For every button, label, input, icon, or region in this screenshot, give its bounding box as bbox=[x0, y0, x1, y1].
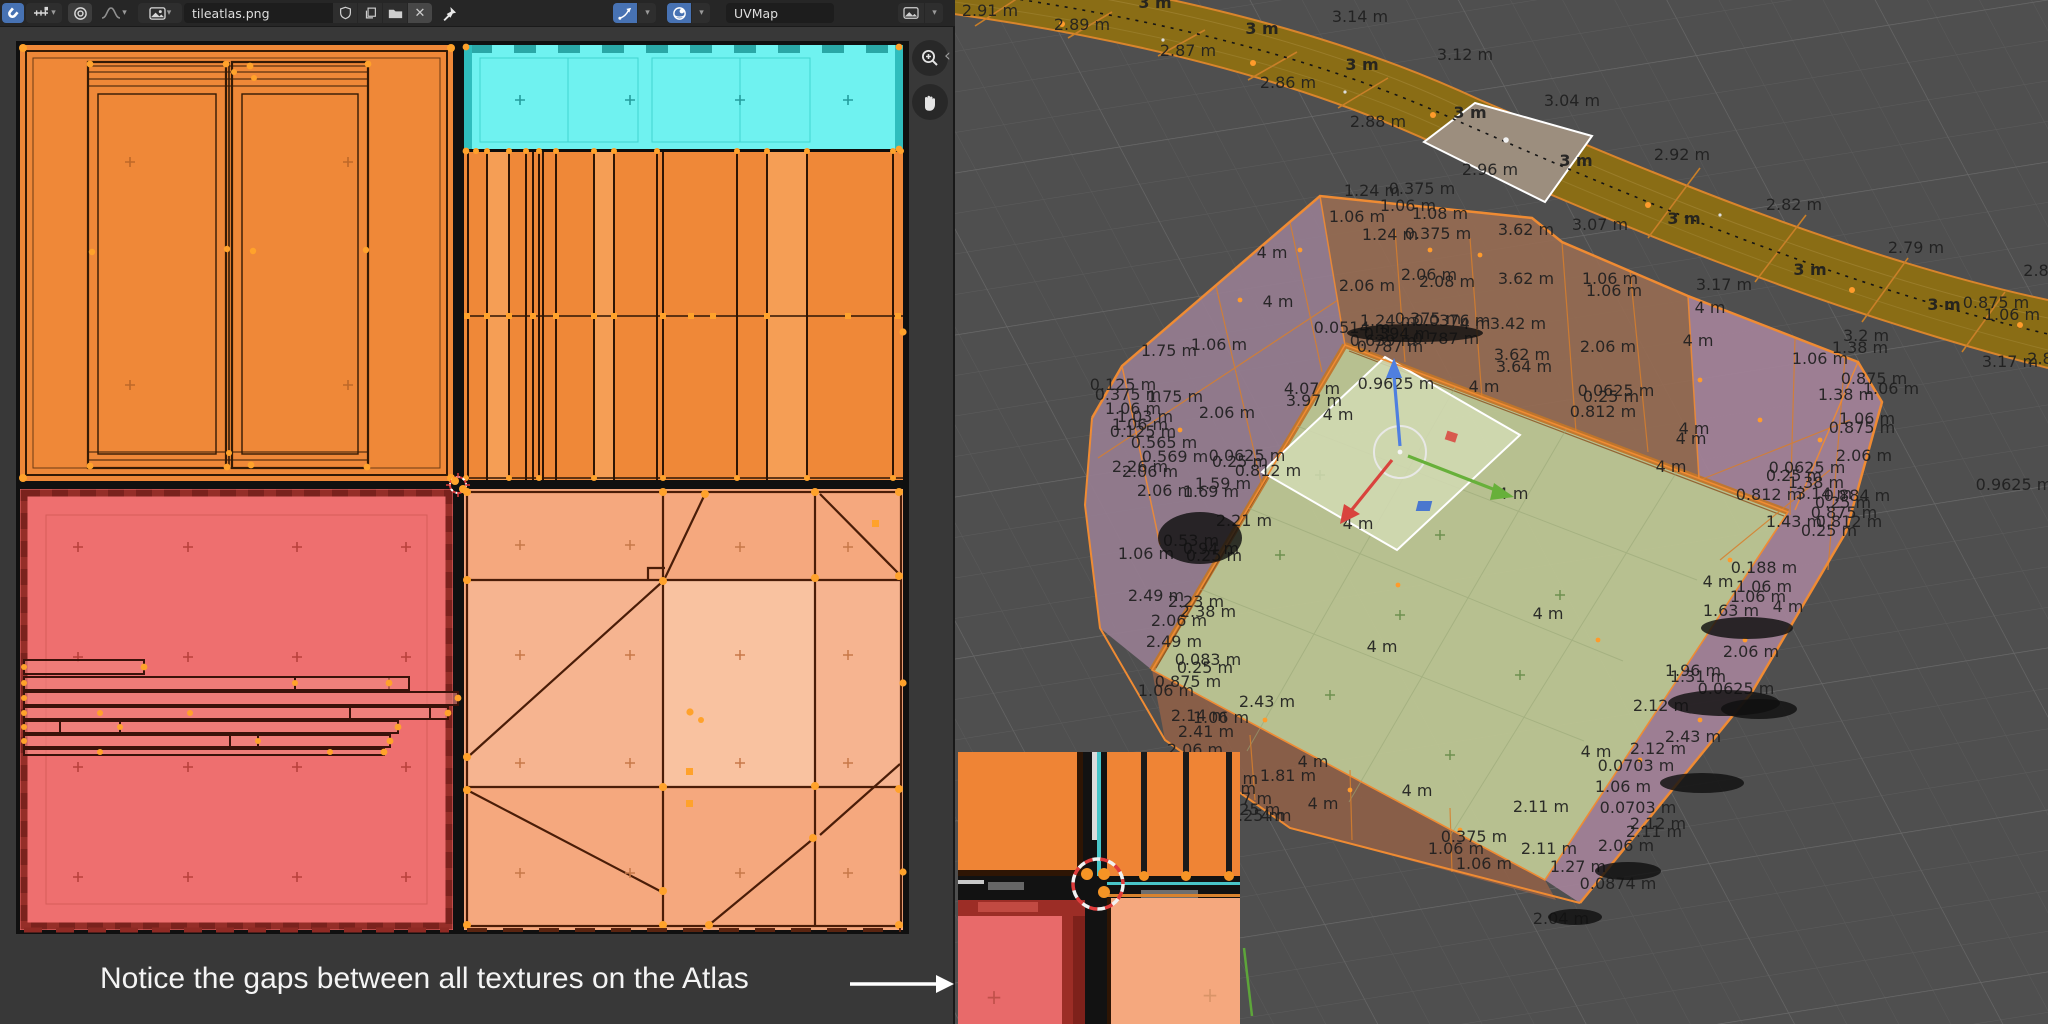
svg-text:2.08 m: 2.08 m bbox=[1419, 272, 1475, 291]
snap-toggle-button[interactable] bbox=[2, 3, 24, 23]
svg-text:3.42 m: 3.42 m bbox=[1490, 314, 1546, 333]
proportional-editing-button[interactable] bbox=[68, 3, 92, 23]
chevron-down-icon: ▾ bbox=[51, 8, 56, 18]
svg-text:2.82 m: 2.82 m bbox=[1766, 195, 1822, 214]
svg-text:0.375 m: 0.375 m bbox=[1405, 224, 1471, 243]
svg-text:4 m: 4 m bbox=[1263, 292, 1294, 311]
uvmap-name-text: UVMap bbox=[734, 6, 778, 21]
snap-increment-icon bbox=[32, 6, 50, 20]
svg-text:2.06 m: 2.06 m bbox=[1723, 642, 1779, 661]
annotation-arrow bbox=[850, 972, 956, 996]
svg-text:2.06 m: 2.06 m bbox=[1580, 337, 1636, 356]
svg-text:3.12 m: 3.12 m bbox=[1437, 45, 1493, 64]
blender-window: ▾ ▾ ▾ tileatlas.png bbox=[0, 0, 2048, 1024]
svg-text:2.92 m: 2.92 m bbox=[1654, 145, 1710, 164]
svg-text:3 m: 3 m bbox=[1453, 103, 1486, 122]
pin-button[interactable] bbox=[438, 3, 460, 23]
svg-text:2.11 m: 2.11 m bbox=[1521, 839, 1577, 858]
svg-text:4 m: 4 m bbox=[1656, 457, 1687, 476]
svg-text:3.14 m: 3.14 m bbox=[1332, 7, 1388, 26]
svg-text:4 m: 4 m bbox=[1773, 597, 1804, 616]
chevron-down-icon: ▾ bbox=[645, 8, 650, 18]
folder-icon bbox=[388, 7, 403, 20]
uv-editor-header: ▾ ▾ ▾ tileatlas.png bbox=[0, 0, 955, 27]
annotation-text: Notice the gaps between all textures on … bbox=[100, 962, 749, 996]
svg-text:+: + bbox=[986, 985, 1003, 1009]
hand-icon bbox=[920, 92, 940, 112]
svg-text:0.25 m: 0.25 m bbox=[1801, 521, 1857, 540]
display-channels-dropdown[interactable]: ▾ bbox=[925, 3, 943, 23]
svg-text:1.08 m: 1.08 m bbox=[1412, 204, 1468, 223]
svg-text:0.9625 m: 0.9625 m bbox=[1976, 475, 2048, 494]
svg-text:2.89 m: 2.89 m bbox=[1054, 15, 1110, 34]
editor-split-divider[interactable] bbox=[953, 0, 955, 1024]
gizmo-dropdown[interactable]: ▾ bbox=[638, 3, 656, 23]
svg-text:1.38 m: 1.38 m bbox=[1832, 338, 1888, 357]
svg-text:1.81 m: 1.81 m bbox=[1260, 766, 1316, 785]
falloff-curve-icon bbox=[101, 6, 121, 20]
svg-text:2.06 m: 2.06 m bbox=[1598, 836, 1654, 855]
atlas-quadrant-salmon bbox=[463, 488, 903, 930]
svg-text:3.62 m: 3.62 m bbox=[1498, 269, 1554, 288]
gizmo-plane-handle[interactable] bbox=[1416, 501, 1432, 511]
snap-mode-dropdown[interactable]: ▾ bbox=[26, 3, 62, 23]
atlas-zoom-inset: + + bbox=[958, 752, 1240, 1024]
svg-text:3.64 m: 3.64 m bbox=[1496, 357, 1552, 376]
inset-overlay: + + bbox=[958, 752, 1240, 1024]
open-image-button[interactable] bbox=[383, 3, 407, 23]
gizmo-toggle-button[interactable] bbox=[613, 3, 637, 23]
uvmap-field[interactable]: UVMap bbox=[726, 3, 834, 23]
svg-text:0.0703 m: 0.0703 m bbox=[1598, 756, 1675, 775]
falloff-dropdown[interactable]: ▾ bbox=[94, 3, 134, 23]
svg-text:1.06 m: 1.06 m bbox=[1329, 207, 1385, 226]
overlays-toggle-button[interactable] bbox=[667, 3, 691, 23]
svg-text:4 m: 4 m bbox=[1533, 604, 1564, 623]
close-icon: ✕ bbox=[415, 6, 426, 21]
overlays-dropdown[interactable]: ▾ bbox=[692, 3, 710, 23]
zoom-button[interactable] bbox=[912, 40, 948, 76]
svg-text:0.875 m: 0.875 m bbox=[1829, 418, 1895, 437]
svg-text:4 m: 4 m bbox=[1703, 572, 1734, 591]
svg-text:2.79 m: 2.79 m bbox=[1888, 238, 1944, 257]
svg-text:1.59 m: 1.59 m bbox=[1195, 474, 1251, 493]
overlays-sphere-icon bbox=[672, 6, 687, 21]
svg-text:3 m: 3 m bbox=[1138, 0, 1171, 12]
shield-icon bbox=[339, 6, 352, 20]
svg-text:2.06 m: 2.06 m bbox=[1199, 403, 1255, 422]
chevron-down-icon: ▾ bbox=[122, 8, 127, 18]
copy-icon bbox=[364, 6, 377, 20]
svg-text:3 m: 3 m bbox=[1559, 151, 1592, 170]
duplicate-image-button[interactable] bbox=[358, 3, 382, 23]
image-display-icon bbox=[903, 6, 919, 20]
svg-text:3 m: 3 m bbox=[1345, 55, 1378, 74]
svg-text:4 m: 4 m bbox=[1676, 429, 1707, 448]
magnifier-plus-icon bbox=[920, 48, 940, 68]
image-name-field[interactable]: tileatlas.png bbox=[184, 3, 340, 23]
atlas-quadrant-door bbox=[19, 44, 455, 482]
image-icon bbox=[149, 6, 166, 21]
svg-text:0.188 m: 0.188 m bbox=[1731, 558, 1797, 577]
svg-text:4 m: 4 m bbox=[1695, 298, 1726, 317]
svg-text:4 m: 4 m bbox=[1261, 806, 1292, 825]
svg-text:4 m: 4 m bbox=[1683, 331, 1714, 350]
chevron-down-icon: ▾ bbox=[167, 8, 172, 18]
svg-text:1.06 m: 1.06 m bbox=[1191, 335, 1247, 354]
svg-text:3 m: 3 m bbox=[1927, 295, 1960, 314]
svg-text:4 m: 4 m bbox=[1323, 405, 1354, 424]
svg-text:2.8: 2.8 bbox=[2023, 261, 2048, 280]
svg-text:1.06 m: 1.06 m bbox=[1984, 305, 2040, 324]
svg-text:3 m: 3 m bbox=[1245, 19, 1278, 38]
svg-text:3.04 m: 3.04 m bbox=[1544, 91, 1600, 110]
image-browse-dropdown[interactable]: ▾ bbox=[138, 3, 182, 23]
pan-button[interactable] bbox=[912, 84, 948, 120]
chevron-down-icon: ▾ bbox=[699, 8, 704, 18]
svg-text:2.06 m: 2.06 m bbox=[1122, 462, 1178, 481]
svg-text:3 m: 3 m bbox=[1667, 209, 1700, 228]
svg-text:2.87 m: 2.87 m bbox=[1160, 41, 1216, 60]
svg-text:+: + bbox=[1202, 983, 1219, 1007]
svg-text:3 m: 3 m bbox=[1793, 260, 1826, 279]
unlink-image-button[interactable]: ✕ bbox=[408, 3, 432, 23]
svg-text:4 m: 4 m bbox=[1469, 377, 1500, 396]
svg-text:1.38 m: 1.38 m bbox=[1818, 385, 1874, 404]
svg-text:4 m: 4 m bbox=[1308, 794, 1339, 813]
svg-text:4 m: 4 m bbox=[1257, 243, 1288, 262]
svg-text:4 m: 4 m bbox=[1367, 637, 1398, 656]
atlas-quadrant-red bbox=[20, 489, 461, 930]
svg-text:1.06 m: 1.06 m bbox=[1456, 854, 1512, 873]
svg-text:1.06 m: 1.06 m bbox=[1582, 269, 1638, 288]
magnet-icon bbox=[6, 6, 20, 20]
svg-text:2.8: 2.8 bbox=[2027, 349, 2048, 368]
svg-text:4 m: 4 m bbox=[1402, 781, 1433, 800]
svg-text:1.75 m: 1.75 m bbox=[1141, 341, 1197, 360]
proportional-editing-icon bbox=[73, 6, 88, 21]
pin-icon bbox=[442, 6, 457, 21]
svg-text:2.49 m: 2.49 m bbox=[1146, 632, 1202, 651]
svg-text:2.96 m: 2.96 m bbox=[1462, 160, 1518, 179]
fake-user-button[interactable] bbox=[333, 3, 357, 23]
svg-text:3.62 m: 3.62 m bbox=[1498, 220, 1554, 239]
gizmo-arrow-icon bbox=[618, 6, 633, 21]
svg-text:0.812 m: 0.812 m bbox=[1570, 402, 1636, 421]
svg-text:0.812 m: 0.812 m bbox=[1736, 485, 1802, 504]
region-collapse-arrow[interactable]: ‹ bbox=[944, 46, 951, 66]
svg-text:3.07 m: 3.07 m bbox=[1572, 215, 1628, 234]
atlas-quadrant-planks bbox=[463, 44, 904, 481]
svg-text:2.06 m: 2.06 m bbox=[1339, 276, 1395, 295]
svg-text:3.17 m: 3.17 m bbox=[1696, 275, 1752, 294]
svg-text:1.06 m: 1.06 m bbox=[1595, 777, 1651, 796]
image-name-text: tileatlas.png bbox=[192, 6, 270, 21]
svg-text:1.06 m: 1.06 m bbox=[1138, 681, 1194, 700]
svg-text:2.11 m: 2.11 m bbox=[1513, 797, 1569, 816]
svg-text:2.06 m: 2.06 m bbox=[1151, 611, 1207, 630]
uv-editor-canvas[interactable] bbox=[0, 0, 955, 1024]
svg-text:2.91 m: 2.91 m bbox=[962, 1, 1018, 20]
svg-text:2.88 m: 2.88 m bbox=[1350, 112, 1406, 131]
chevron-down-icon: ▾ bbox=[932, 8, 937, 18]
svg-text:2.86 m: 2.86 m bbox=[1260, 73, 1316, 92]
svg-text:2.41 m: 2.41 m bbox=[1178, 722, 1234, 741]
display-channels-button[interactable] bbox=[898, 3, 924, 23]
